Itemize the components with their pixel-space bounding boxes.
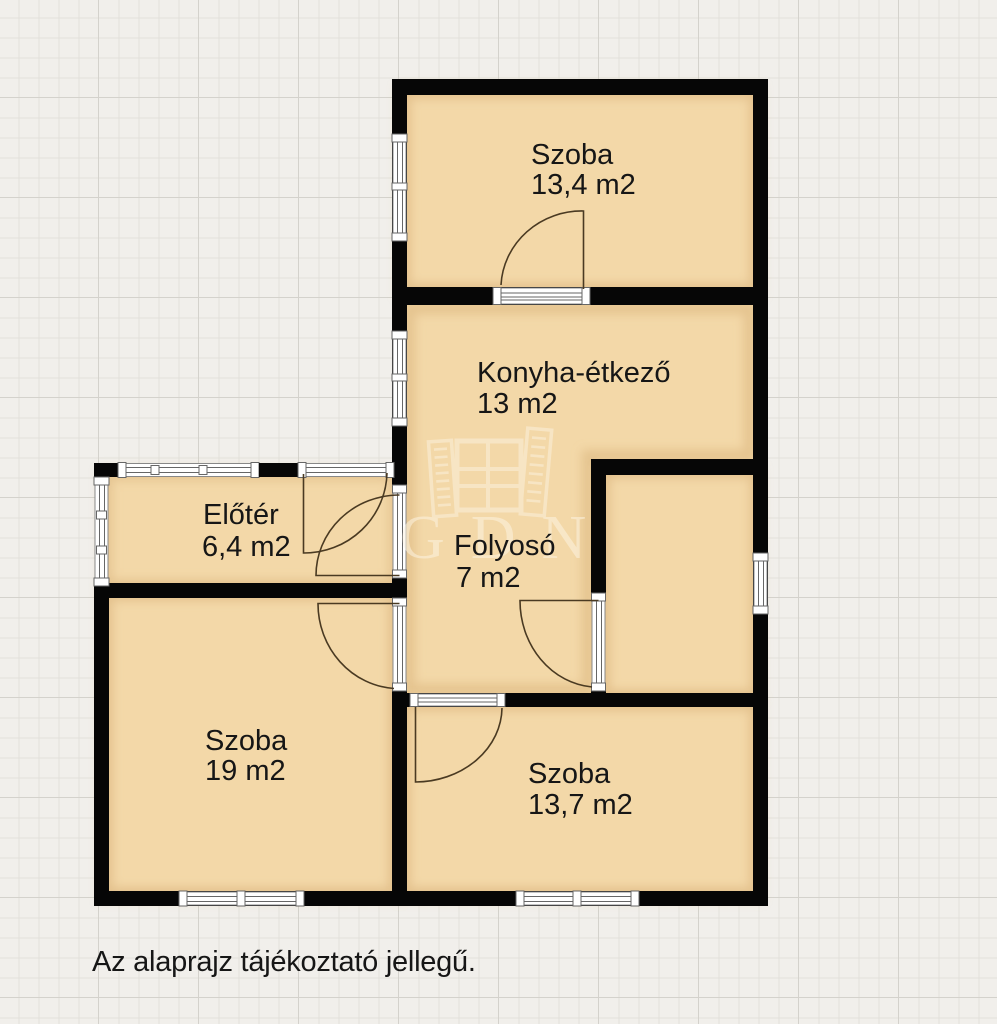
svg-text:6,4 m2: 6,4 m2 [202, 531, 291, 563]
svg-text:Szoba: Szoba [531, 139, 614, 171]
svg-text:Folyosó: Folyosó [454, 530, 556, 562]
svg-text:7 m2: 7 m2 [456, 562, 520, 594]
svg-text:Konyha-étkező: Konyha-étkező [477, 357, 670, 389]
svg-text:13,7 m2: 13,7 m2 [528, 789, 633, 821]
svg-text:19 m2: 19 m2 [205, 755, 286, 787]
svg-text:13,4 m2: 13,4 m2 [531, 169, 636, 201]
svg-text:Előtér: Előtér [203, 499, 279, 531]
svg-text:Az alaprajz tájékoztató jelleg: Az alaprajz tájékoztató jellegű. [92, 946, 476, 978]
svg-text:13 m2: 13 m2 [477, 388, 558, 420]
svg-text:Szoba: Szoba [205, 725, 288, 757]
svg-text:Szoba: Szoba [528, 758, 611, 790]
